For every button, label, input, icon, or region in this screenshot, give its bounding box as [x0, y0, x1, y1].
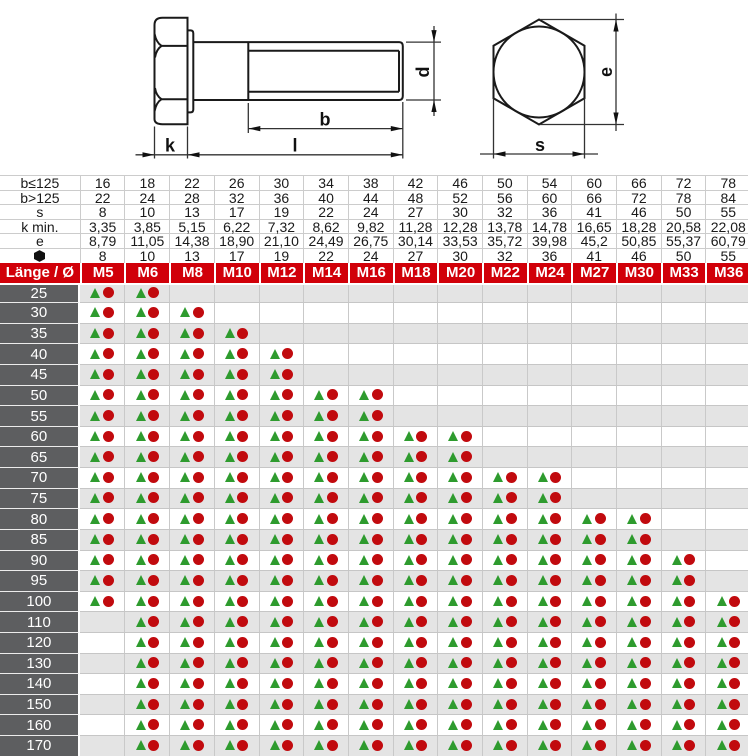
svg-text:k: k: [165, 136, 176, 156]
svg-text:e: e: [596, 67, 616, 77]
svg-text:d: d: [413, 67, 433, 78]
svg-text:l: l: [292, 136, 297, 156]
svg-text:b: b: [320, 110, 331, 130]
svg-text:s: s: [535, 135, 545, 155]
